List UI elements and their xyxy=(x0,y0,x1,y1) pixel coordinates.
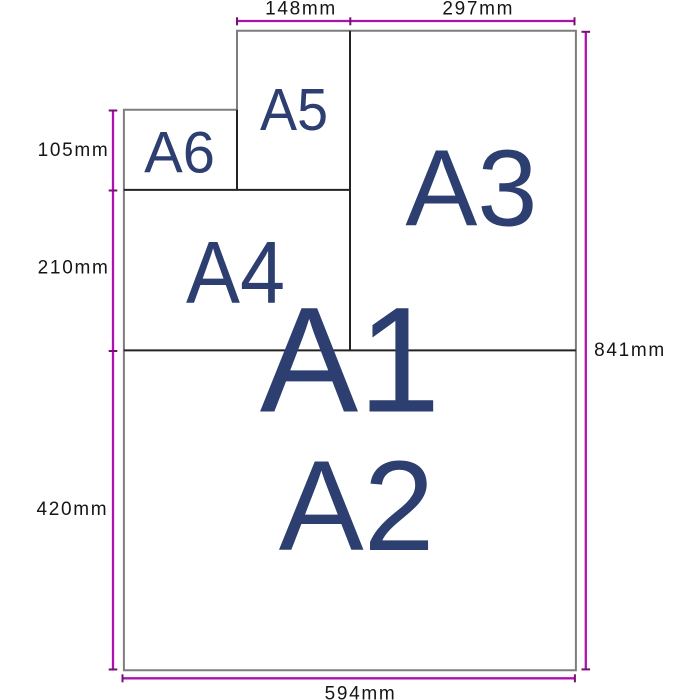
svg-text:105mm: 105mm xyxy=(38,140,110,161)
svg-text:148mm: 148mm xyxy=(265,0,337,20)
svg-text:A1: A1 xyxy=(260,276,441,444)
svg-text:297mm: 297mm xyxy=(442,0,514,20)
svg-text:420mm: 420mm xyxy=(36,499,108,520)
svg-text:210mm: 210mm xyxy=(38,257,110,278)
svg-text:A2: A2 xyxy=(279,435,435,578)
svg-text:594mm: 594mm xyxy=(325,684,397,700)
svg-text:A5: A5 xyxy=(260,77,328,143)
svg-text:A3: A3 xyxy=(405,128,537,250)
svg-text:A6: A6 xyxy=(144,121,215,186)
svg-text:841mm: 841mm xyxy=(594,340,666,361)
